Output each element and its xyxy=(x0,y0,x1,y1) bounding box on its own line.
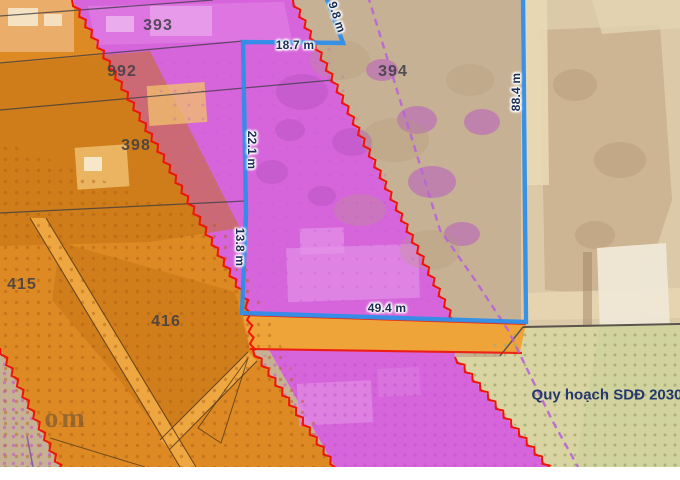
orange-corner-roof xyxy=(8,8,38,26)
planning-map-canvas[interactable]: 18.7 m 9.8 m 22.1 m 13.8 m 49.4 m 88.4 m… xyxy=(0,0,680,480)
field-blob xyxy=(575,221,615,249)
building-shadow xyxy=(583,252,592,330)
magenta-building xyxy=(150,6,212,36)
magenta-building xyxy=(106,16,134,32)
satellite-topright-light xyxy=(592,0,680,34)
tree-blob xyxy=(464,109,500,135)
field-blob xyxy=(594,142,646,178)
map-layers xyxy=(0,0,680,480)
satellite-road-vertical xyxy=(524,0,549,185)
bottom-white-strip xyxy=(0,467,680,480)
tree-blob xyxy=(408,166,456,198)
orange-building-roof xyxy=(84,157,102,171)
field-blob xyxy=(553,69,597,101)
orange-corner-roof xyxy=(44,14,62,26)
building-rooftop xyxy=(597,243,670,334)
tan-blob xyxy=(446,64,494,96)
